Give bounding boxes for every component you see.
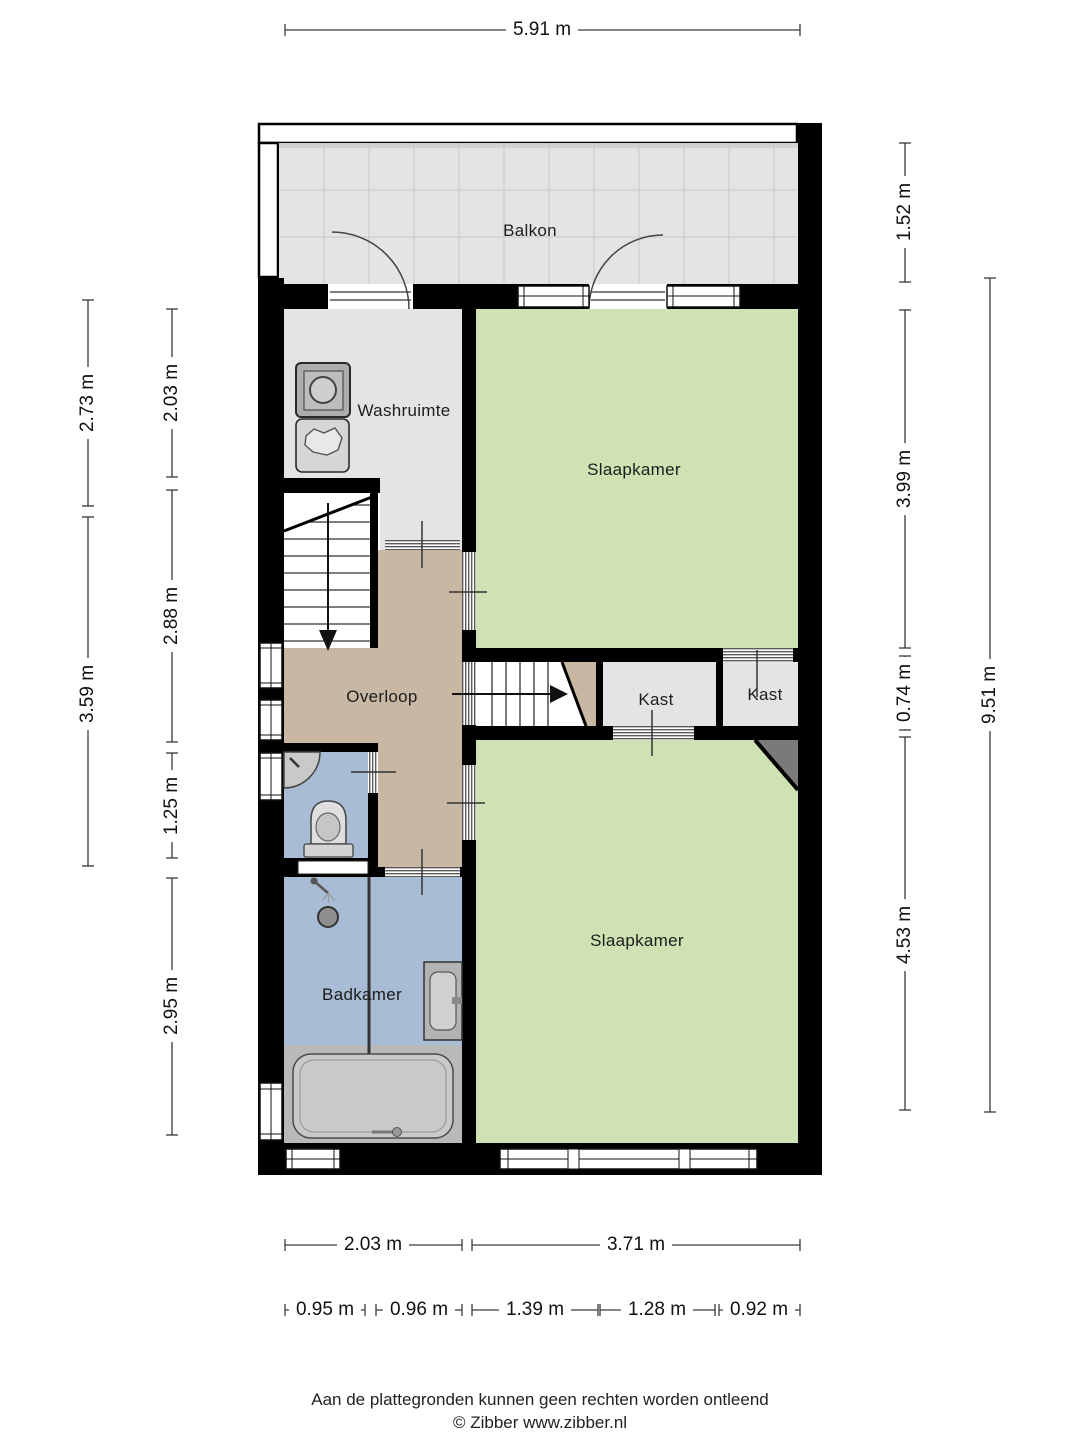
- balcony-railing-top: [259, 124, 797, 143]
- window: [667, 286, 740, 307]
- dim-bottom-row1-1: 2.03 m: [337, 1234, 409, 1256]
- wall-kast-divider: [716, 662, 723, 726]
- room-label-slaapkamer-bottom: Slaapkamer: [590, 931, 684, 951]
- wall-interior: [462, 630, 476, 662]
- washruimte-floor-lower: [380, 478, 462, 550]
- window: [518, 286, 589, 307]
- footer-copyright: © Zibber www.zibber.nl: [0, 1413, 1080, 1433]
- wall-washruimte-stairs: [284, 478, 380, 493]
- dim-right-outer: 9.51 m: [979, 659, 1001, 731]
- room-label-badkamer: Badkamer: [322, 985, 402, 1005]
- door-opening-kast-left: [613, 726, 694, 740]
- balcony-railing-left: [259, 143, 278, 277]
- room-label-kast-right: Kast: [747, 685, 782, 705]
- wall-wc-top: [284, 743, 378, 752]
- room-label-kast-left: Kast: [638, 690, 673, 710]
- floor-plan-drawing: [0, 0, 1080, 1440]
- washbasin-icon: [424, 962, 462, 1040]
- dim-bottom-row2-3: 1.39 m: [499, 1299, 571, 1321]
- overloop-corridor-top: [378, 550, 462, 648]
- wc-door-leaf: [298, 861, 368, 874]
- bathtub-icon: [293, 1054, 453, 1138]
- room-label-balkon: Balkon: [503, 221, 557, 241]
- dim-left-inner-3: 1.25 m: [161, 770, 183, 842]
- window: [260, 753, 282, 800]
- dim-left-inner-2: 2.88 m: [161, 580, 183, 652]
- balkon-floor: [279, 143, 798, 284]
- window: [260, 1083, 282, 1140]
- wall-interior: [462, 725, 476, 765]
- wall-stair-stringer: [370, 493, 378, 648]
- wall-interior: [462, 309, 476, 552]
- dim-bottom-row2-4: 1.28 m: [621, 1299, 693, 1321]
- dim-bottom-row2-2: 0.96 m: [383, 1299, 455, 1321]
- dim-right-inner-2: 3.99 m: [894, 443, 916, 515]
- dim-top-width: 5.91 m: [506, 19, 578, 41]
- wall-interior: [462, 840, 476, 1143]
- door-opening-slaapkamer-top: [462, 552, 476, 630]
- dim-right-inner-3: 0.74 m: [894, 657, 916, 729]
- room-label-overloop: Overloop: [346, 687, 417, 707]
- window: [260, 700, 282, 740]
- dim-right-inner-4: 4.53 m: [894, 899, 916, 971]
- footer-disclaimer: Aan de plattegronden kunnen geen rechten…: [0, 1390, 1080, 1410]
- window: [500, 1149, 757, 1169]
- overloop-corridor-bottom: [378, 743, 462, 867]
- room-label-slaapkamer-top: Slaapkamer: [587, 460, 681, 480]
- balkon-floor-shadow: [279, 143, 798, 148]
- dim-left-outer-2: 3.59 m: [77, 658, 99, 730]
- dim-bottom-row1-2: 3.71 m: [600, 1234, 672, 1256]
- dim-left-inner-1: 2.03 m: [161, 357, 183, 429]
- laundry-basket-icon: [296, 419, 349, 472]
- wall-stairs-kast: [596, 662, 603, 728]
- floor-plan: Balkon Washruimte Slaapkamer Overloop Ka…: [0, 0, 1080, 1440]
- window: [286, 1149, 340, 1169]
- door-opening-kast-right: [723, 648, 793, 662]
- wall-right-exterior: [798, 123, 822, 1175]
- room-label-washruimte: Washruimte: [357, 401, 450, 421]
- washing-machine-icon: [296, 363, 350, 417]
- wall-wc-right: [368, 793, 378, 860]
- dim-right-inner-1: 1.52 m: [894, 176, 916, 248]
- window: [260, 643, 282, 688]
- dim-bottom-row2-5: 0.92 m: [723, 1299, 795, 1321]
- dim-left-inner-4: 2.95 m: [161, 970, 183, 1042]
- shower-drain-icon: [318, 907, 338, 927]
- dim-left-outer-1: 2.73 m: [77, 367, 99, 439]
- dim-bottom-row2-1: 0.95 m: [289, 1299, 361, 1321]
